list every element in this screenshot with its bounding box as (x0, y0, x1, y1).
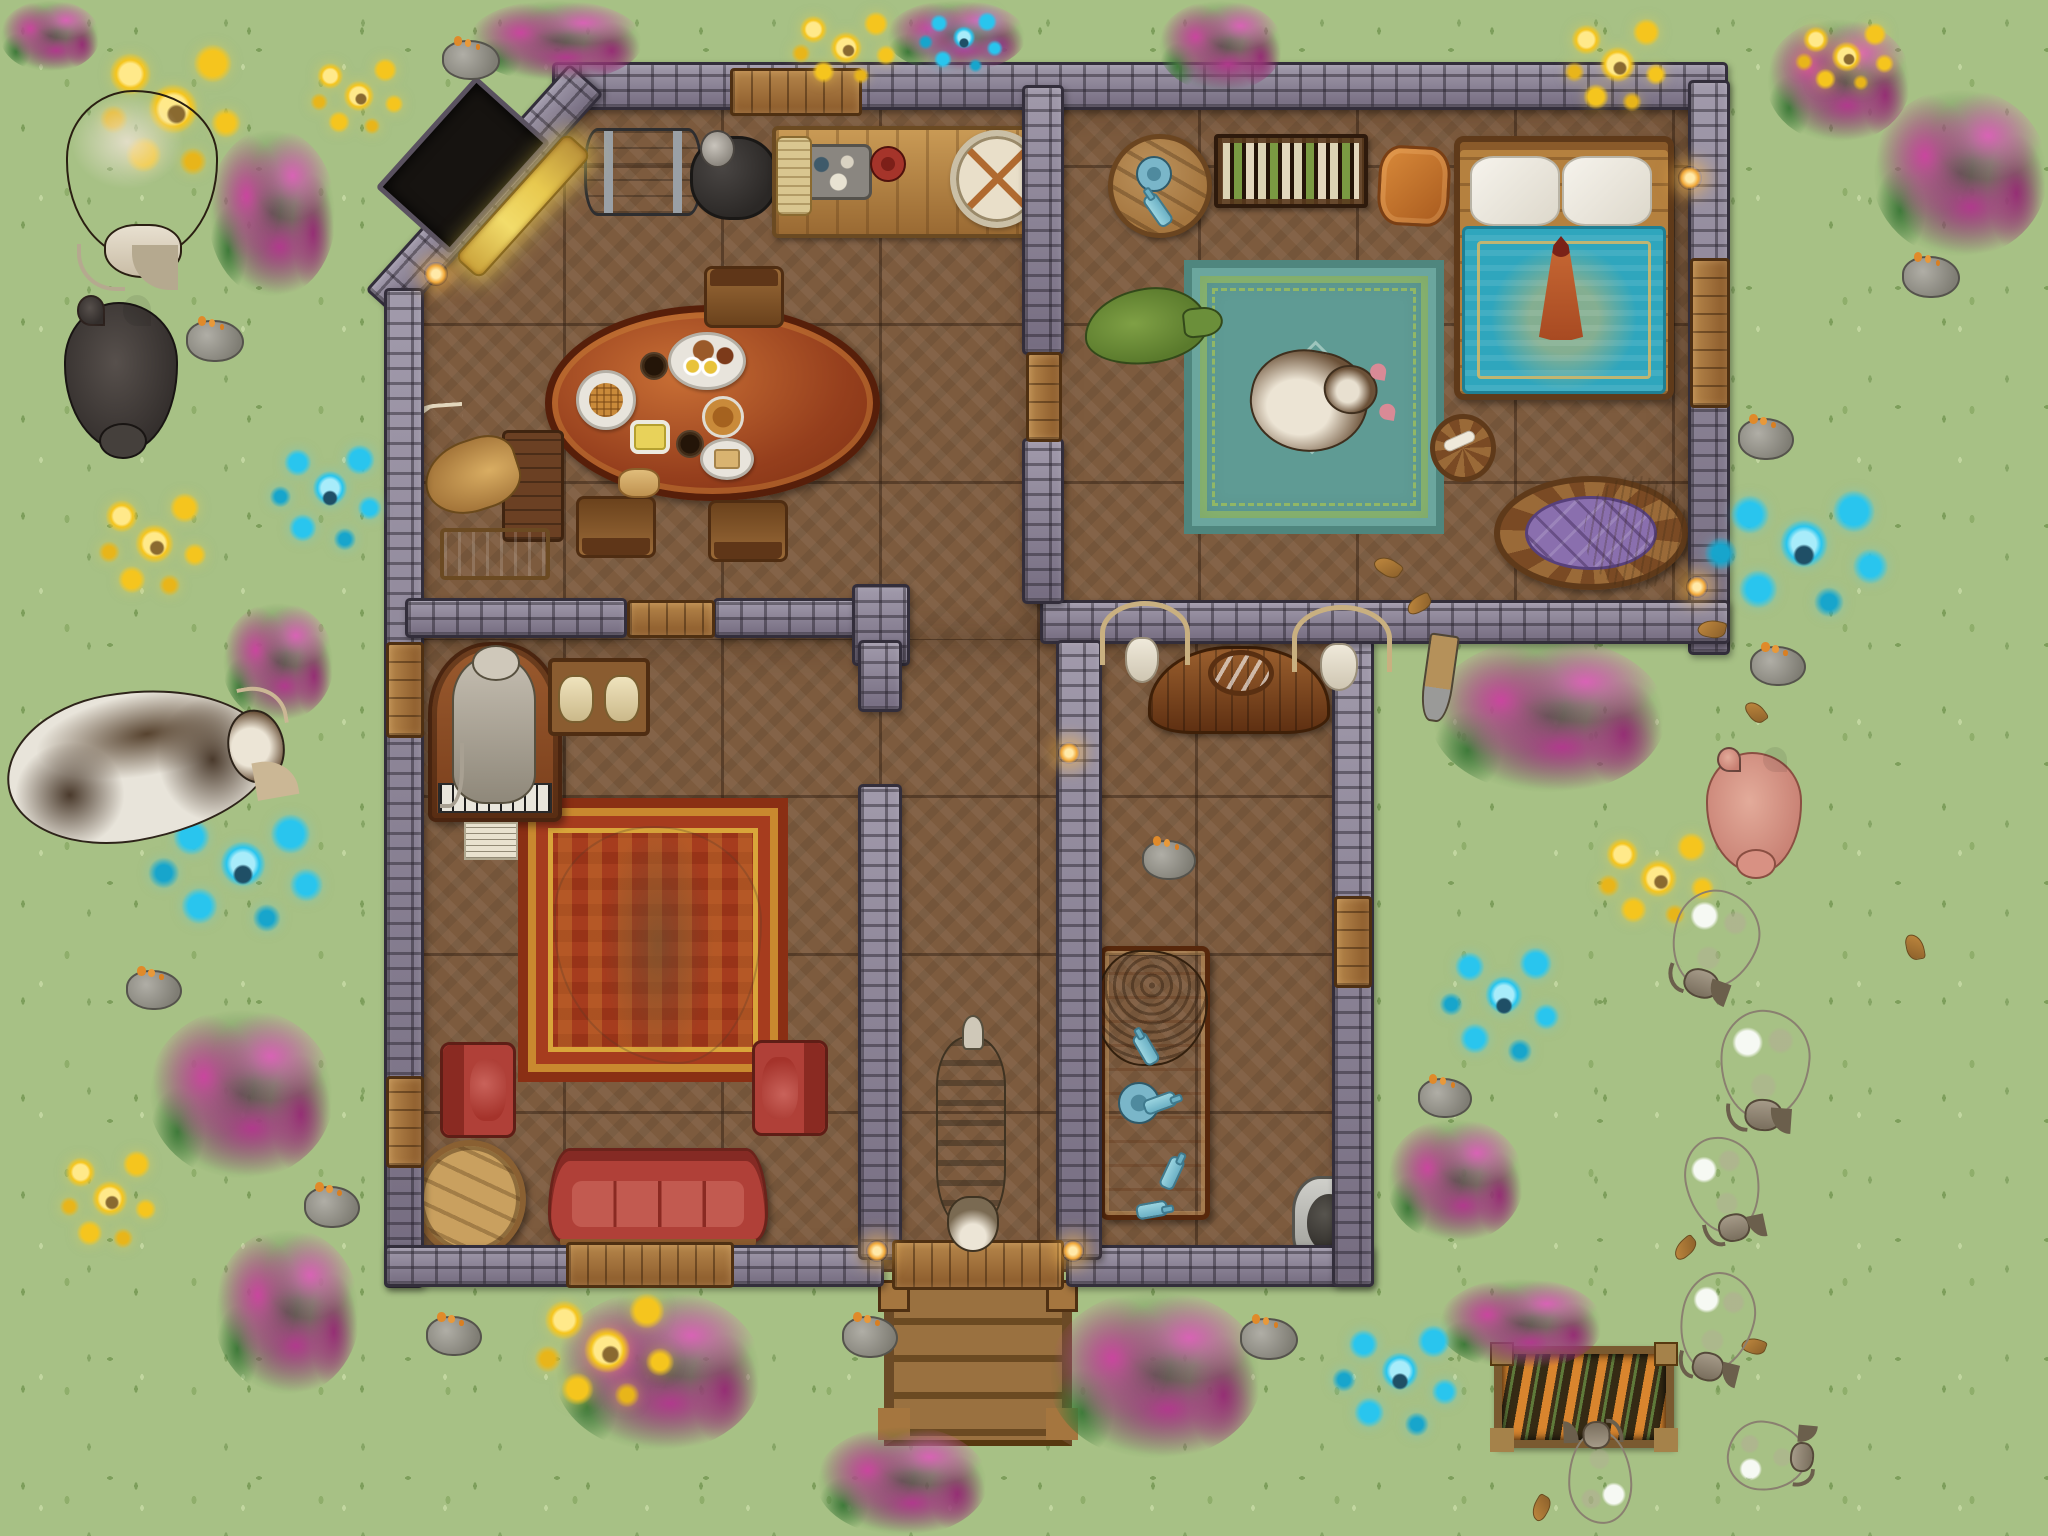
blue-plate (1136, 156, 1172, 192)
deer-skull-east (1290, 610, 1384, 694)
hall-west-wall-a (858, 640, 902, 712)
sandwich-plate (700, 438, 754, 480)
waffle-plate (576, 370, 636, 430)
room-divider-wall-bottom (1022, 438, 1064, 604)
blue-glow-plant-6 (916, 0, 1012, 78)
black-pig[interactable] (64, 302, 178, 452)
mushroom-rock-7 (1240, 1318, 1298, 1360)
mid-wall-door[interactable] (627, 600, 715, 638)
bottle-shelf (1214, 134, 1368, 208)
coffee-mug (640, 352, 668, 380)
breakfast-platter (668, 332, 746, 390)
workroom-east-door[interactable] (1334, 896, 1372, 988)
mushroom-rock-2 (186, 320, 244, 362)
mushroom-rock-11 (1738, 418, 1794, 460)
blue-glow-plant-1 (268, 420, 392, 562)
pink-bush-14 (1386, 1118, 1524, 1243)
sheep-3[interactable] (1677, 1129, 1770, 1240)
goat[interactable] (66, 90, 218, 260)
pot-belly-stove (690, 136, 778, 220)
scroll (776, 136, 812, 216)
battle-map (0, 0, 2048, 1536)
armchair-west (440, 1042, 516, 1138)
round-barrel-table (414, 1140, 526, 1258)
sconce-workroom (1058, 742, 1080, 764)
blue-glow-plant-4 (1438, 920, 1570, 1076)
dining-chair-north (704, 266, 784, 328)
blue-glow-plant-3 (1700, 466, 1908, 628)
pet-bed (1494, 476, 1688, 590)
bottom-wall-east (1066, 1245, 1374, 1287)
deer-skull-west (1098, 606, 1182, 686)
mushroom-rock-10 (1750, 646, 1806, 686)
sheep-2[interactable] (1716, 1007, 1813, 1123)
yellow-glow-plant-2 (306, 44, 416, 144)
yarn-winder (548, 658, 650, 736)
mushroom-rock-12 (1902, 256, 1960, 298)
sheet-music (464, 822, 518, 860)
blue-side-table (440, 528, 550, 580)
yellow-glow-plant-5 (1790, 12, 1908, 98)
yellow-glow-plant-4 (1560, 0, 1680, 124)
red-spool (870, 146, 906, 182)
leaf-4 (1743, 698, 1770, 727)
leaf-8 (1904, 933, 1926, 962)
mushroom-rock-8 (1142, 840, 1196, 880)
bread-loaf (618, 468, 660, 498)
cat-on-piano[interactable] (452, 656, 536, 804)
living-west-door[interactable] (386, 642, 424, 738)
dining-chair-south-west (576, 496, 656, 558)
bed-pillow-left (1470, 156, 1560, 226)
yellow-glow-plant-7 (56, 1130, 168, 1262)
pink-bush-6 (1872, 88, 2048, 258)
yellow-glow-plant-6 (94, 472, 220, 610)
pink-bush-corner-nw (0, 0, 100, 72)
barrel (584, 128, 702, 216)
room-divider-door[interactable] (1026, 352, 1062, 442)
yellow-glow-plant-8 (528, 1272, 693, 1422)
entrance-steps (884, 1288, 1072, 1446)
pink-bush-15 (816, 1426, 988, 1536)
mushroom-rock-6 (842, 1316, 898, 1358)
hall-west-wall-b (858, 784, 902, 1260)
vanity-mirror (1208, 650, 1274, 696)
blue-glow-plant-5 (1330, 1300, 1470, 1448)
sconce-bedroom (1678, 166, 1702, 190)
bedroom-east-door[interactable] (1690, 258, 1730, 408)
dog-in-hall[interactable] (936, 1036, 1006, 1228)
room-divider-wall-top (1022, 85, 1064, 355)
mushroom-rock-4 (304, 1186, 360, 1228)
red-sofa (548, 1148, 768, 1242)
sconce-hall-west (866, 1240, 888, 1262)
mid-wall-west-b (713, 598, 860, 638)
mid-wall-west-a (405, 598, 627, 638)
yellow-glow-plant-3 (786, 0, 911, 92)
dining-chair-south-east (708, 500, 788, 562)
pink-bush-9 (214, 1228, 360, 1396)
mushroom-rock-5 (426, 1316, 482, 1356)
orange-floor-pillow (1376, 144, 1452, 228)
butter-dish (634, 424, 666, 450)
bone-basket (1430, 414, 1496, 482)
mushroom-rock-1 (442, 40, 500, 80)
mushroom-rock-3 (126, 970, 182, 1010)
leaf-5 (1670, 1234, 1700, 1263)
sconce-pet-bed (1686, 576, 1708, 598)
hall-east-wall (1056, 640, 1102, 1260)
pie-dish (702, 396, 744, 438)
sheep-4[interactable] (1669, 1265, 1765, 1380)
sconce-hall-east (1062, 1240, 1084, 1262)
living-west-door-2[interactable] (386, 1076, 424, 1168)
pink-bush-8 (148, 1008, 334, 1180)
top-wall (552, 62, 1728, 110)
mushroom-rock-9 (1418, 1078, 1472, 1118)
pink-bush-11 (1048, 1290, 1262, 1460)
pink-bush-4 (1158, 0, 1283, 92)
sheep-6[interactable] (1724, 1418, 1810, 1495)
sconce-dining (424, 262, 448, 286)
bed-pillow-right (1562, 156, 1652, 226)
leaf-7 (1528, 1493, 1555, 1524)
pink-bush-13 (1430, 638, 1666, 794)
armchair-east (752, 1040, 828, 1136)
